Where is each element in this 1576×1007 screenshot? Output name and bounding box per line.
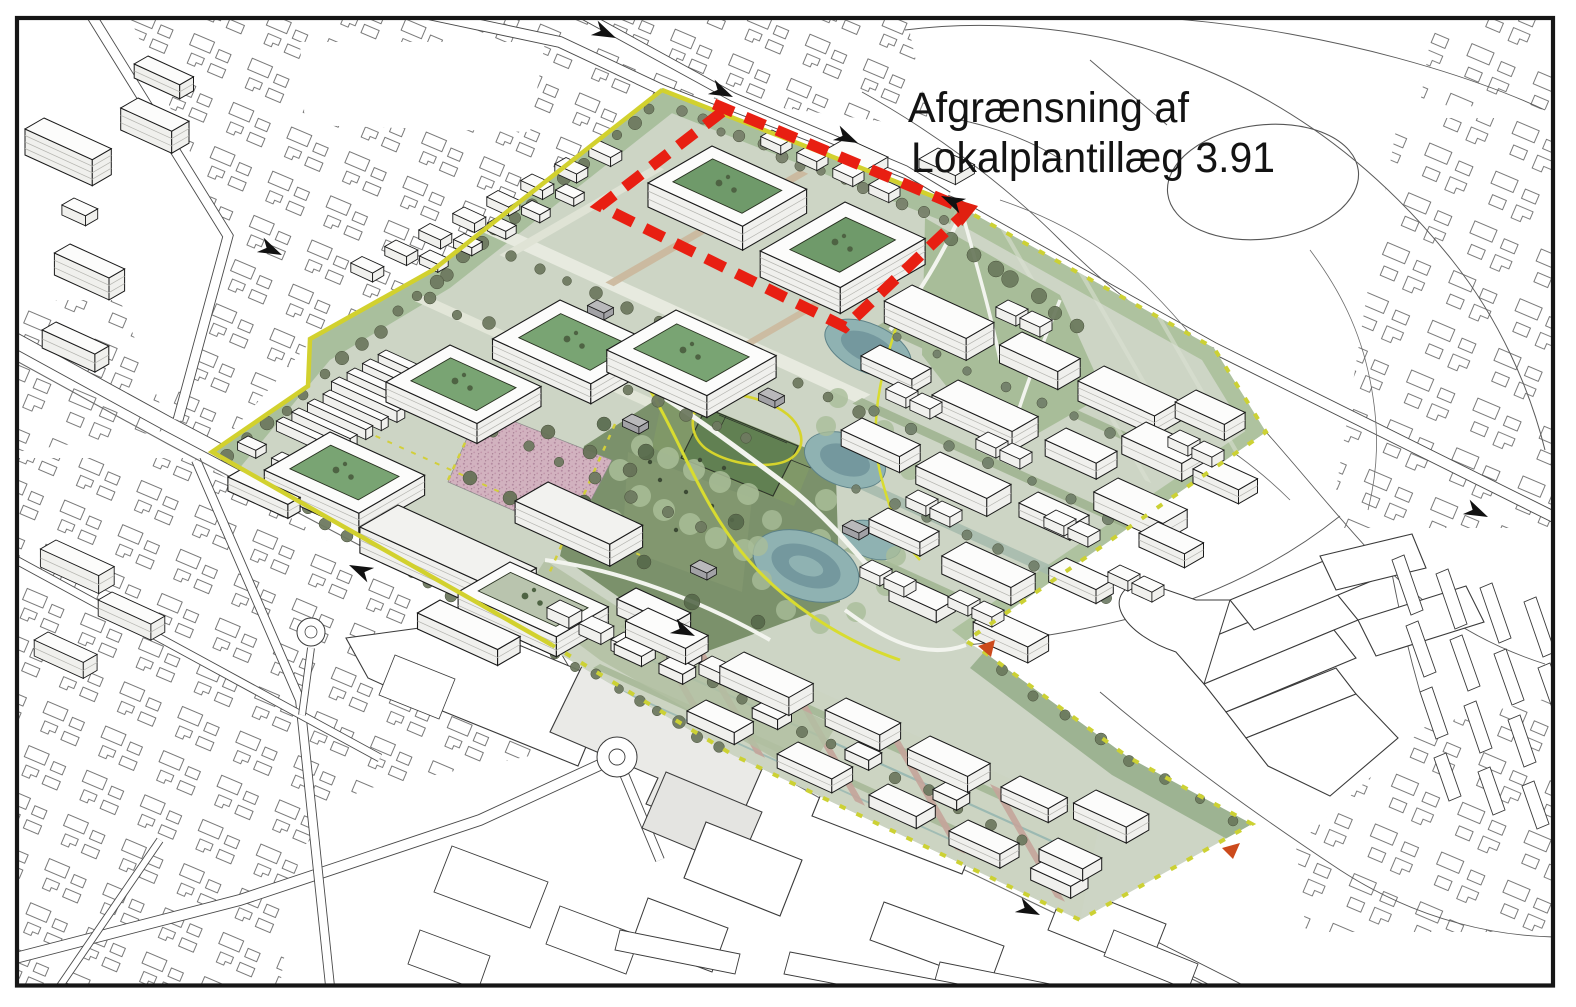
svg-text:Afgrænsning af: Afgrænsning af <box>908 84 1190 132</box>
svg-text:Lokalplantillæg 3.91: Lokalplantillæg 3.91 <box>911 134 1275 182</box>
